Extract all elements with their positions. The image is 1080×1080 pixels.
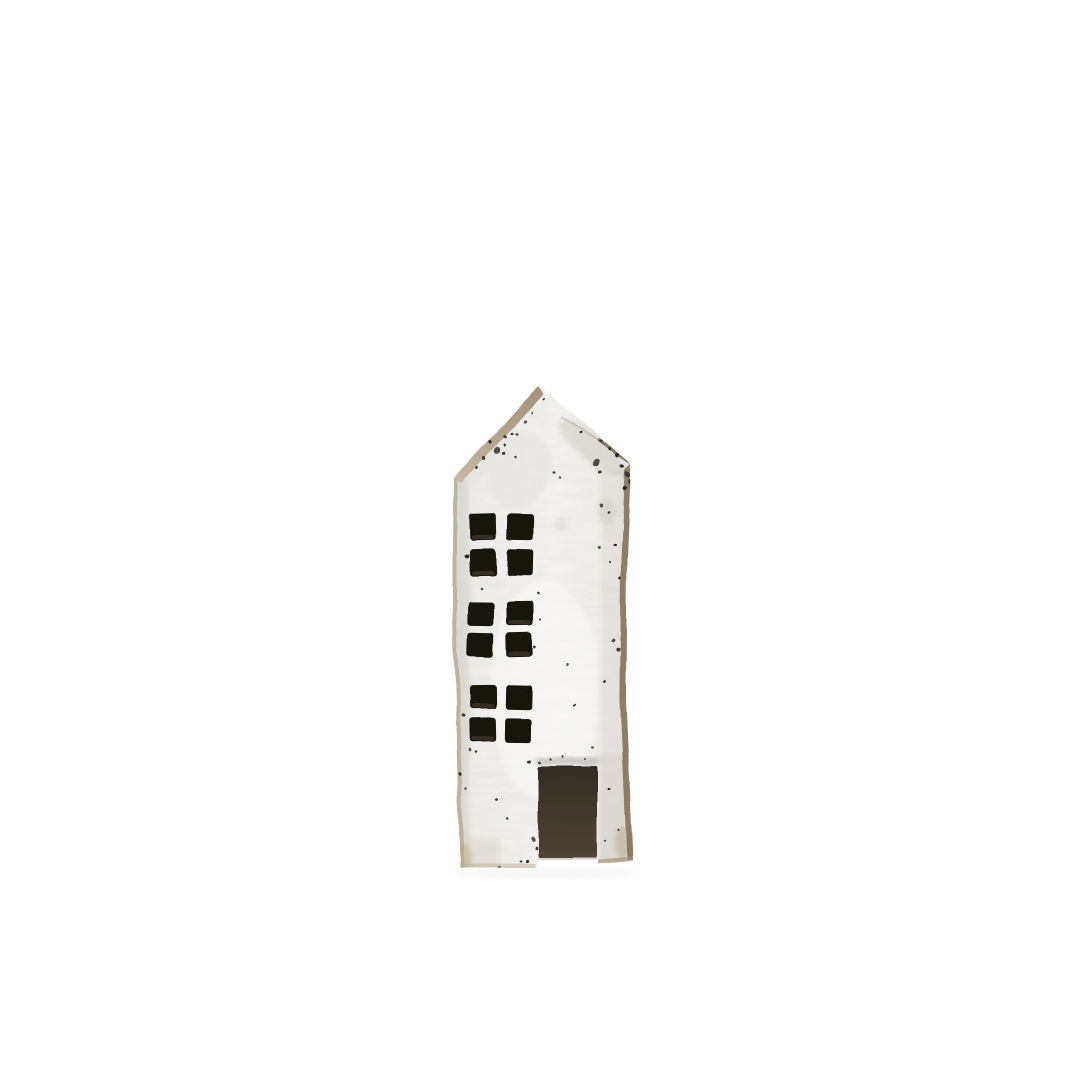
door-cutout <box>538 766 597 858</box>
window-pane-lip <box>472 571 494 575</box>
bottom-edge-left-wood-strip <box>460 864 535 868</box>
house-figurine-photo <box>0 0 1080 1080</box>
window-pane-cutout <box>507 513 533 540</box>
shade-patch <box>597 499 615 525</box>
window-pane-cutout <box>505 685 533 710</box>
cast-shadow <box>453 867 637 879</box>
window-pane-lip <box>472 535 494 539</box>
window-pane-lip <box>509 621 531 625</box>
window-pane-cutout <box>468 602 494 626</box>
window-pane-cutout <box>468 633 495 658</box>
window-pane-cutout <box>507 549 534 577</box>
window-pane-lip <box>509 652 531 656</box>
window-pane-lip <box>471 704 494 708</box>
background <box>0 0 1080 1080</box>
window-pane-lip <box>471 737 494 741</box>
door-lintel-wear <box>537 757 598 765</box>
shade-patch <box>552 517 568 529</box>
